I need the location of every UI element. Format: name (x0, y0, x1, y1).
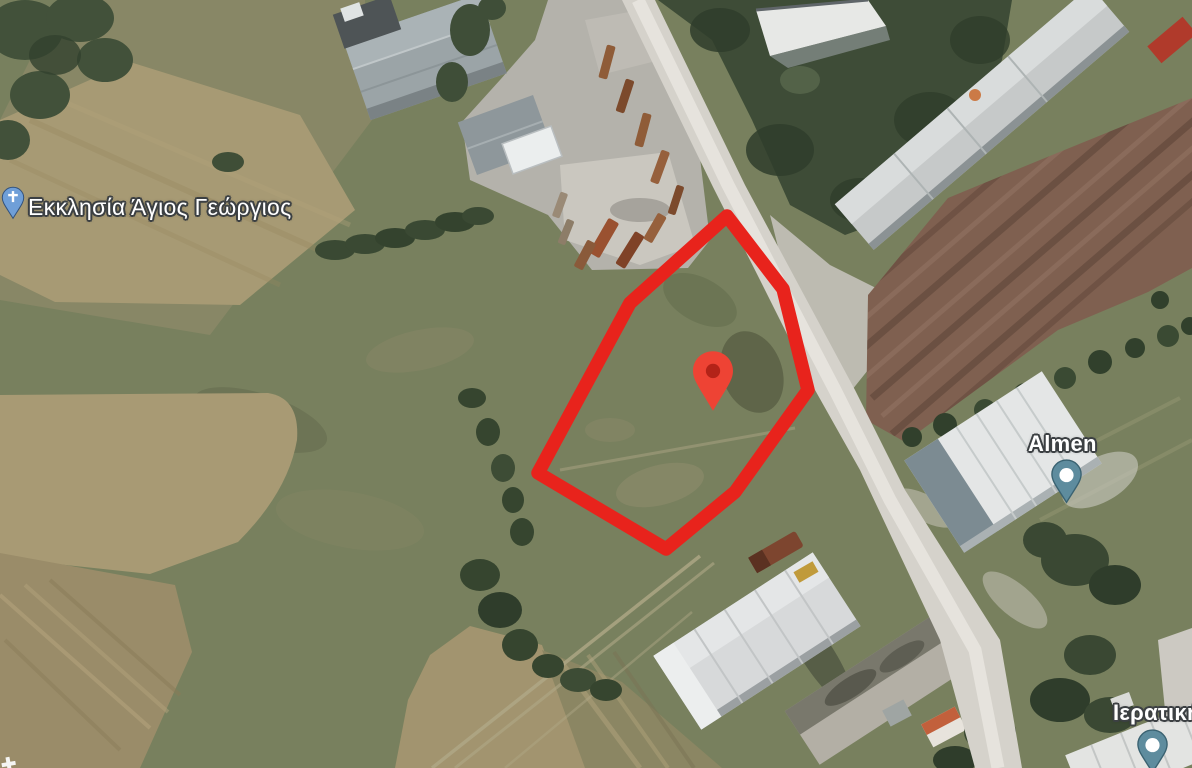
church-label[interactable]: Εκκλησία Άγιος Γεώργιος (28, 194, 292, 221)
red-location-marker-icon[interactable] (691, 348, 735, 414)
almen-pin-icon[interactable] (1050, 459, 1083, 504)
ieratiki-label[interactable]: Ιερατική (1113, 700, 1192, 726)
almen-label[interactable]: Almen (1028, 431, 1097, 457)
satellite-imagery (0, 0, 1192, 768)
ieratiki-pin-icon[interactable] (1136, 729, 1169, 768)
church-pin-icon[interactable] (1, 184, 25, 222)
satellite-map[interactable]: Εκκλησία Άγιος Γεώργιος Almen Ιερατική (0, 0, 1192, 768)
